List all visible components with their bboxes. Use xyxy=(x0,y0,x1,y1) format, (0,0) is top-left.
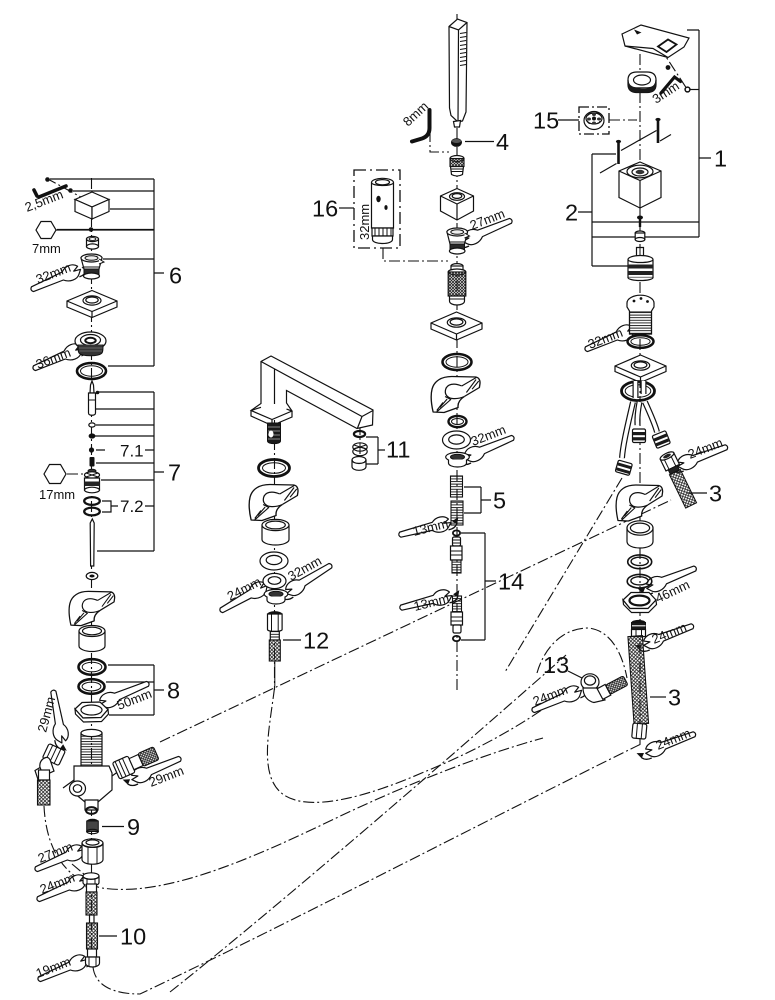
svg-text:12: 12 xyxy=(303,628,329,654)
svg-text:4: 4 xyxy=(496,129,509,155)
svg-text:14: 14 xyxy=(498,569,524,595)
svg-text:7.2: 7.2 xyxy=(120,497,144,516)
svg-text:6: 6 xyxy=(169,263,182,289)
svg-text:7.1: 7.1 xyxy=(120,442,144,461)
svg-text:5: 5 xyxy=(493,488,506,514)
svg-text:3: 3 xyxy=(709,481,722,507)
svg-text:7: 7 xyxy=(168,460,181,486)
svg-text:7mm: 7mm xyxy=(32,241,61,256)
svg-text:16: 16 xyxy=(312,196,338,222)
svg-text:11: 11 xyxy=(386,437,410,463)
svg-text:32mm: 32mm xyxy=(357,204,372,240)
svg-text:10: 10 xyxy=(120,924,146,950)
svg-text:9: 9 xyxy=(127,814,140,840)
svg-text:15: 15 xyxy=(533,108,559,134)
svg-text:2: 2 xyxy=(565,200,578,226)
svg-text:1: 1 xyxy=(714,146,727,172)
svg-text:13: 13 xyxy=(543,652,569,678)
svg-text:17mm: 17mm xyxy=(39,487,75,502)
svg-text:8: 8 xyxy=(167,678,180,704)
svg-text:3: 3 xyxy=(668,685,681,711)
